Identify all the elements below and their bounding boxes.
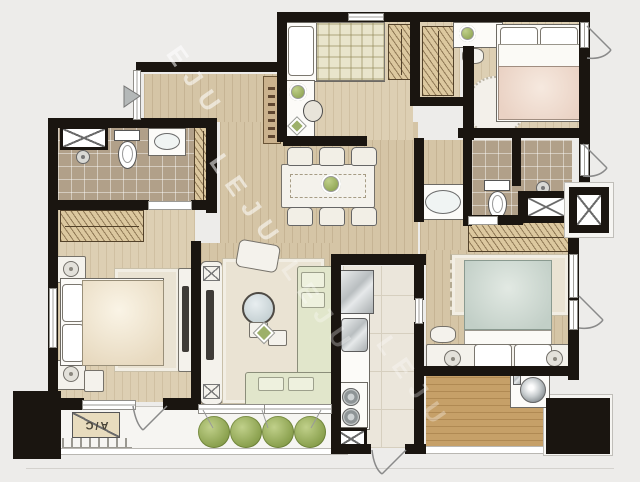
plan-annotations-overlay <box>0 0 640 482</box>
floor-plan-canvas: A/C <box>0 0 640 482</box>
balcony-brace <box>262 410 268 428</box>
balcony-brace <box>203 410 213 428</box>
vent-triangle-icon <box>124 86 140 107</box>
door-swing-icon <box>583 144 607 168</box>
door-swing-icon <box>382 450 406 474</box>
door-swing-icon <box>587 50 611 58</box>
door-swing-icon <box>143 406 167 430</box>
door-swing-icon <box>579 320 603 328</box>
door-swing-icon <box>587 26 611 50</box>
door-swing-icon <box>372 450 382 474</box>
door-swing-icon <box>583 168 607 176</box>
door-swing-icon <box>133 406 143 430</box>
balcony-brace <box>311 410 321 428</box>
door-swing-icon <box>579 296 603 320</box>
